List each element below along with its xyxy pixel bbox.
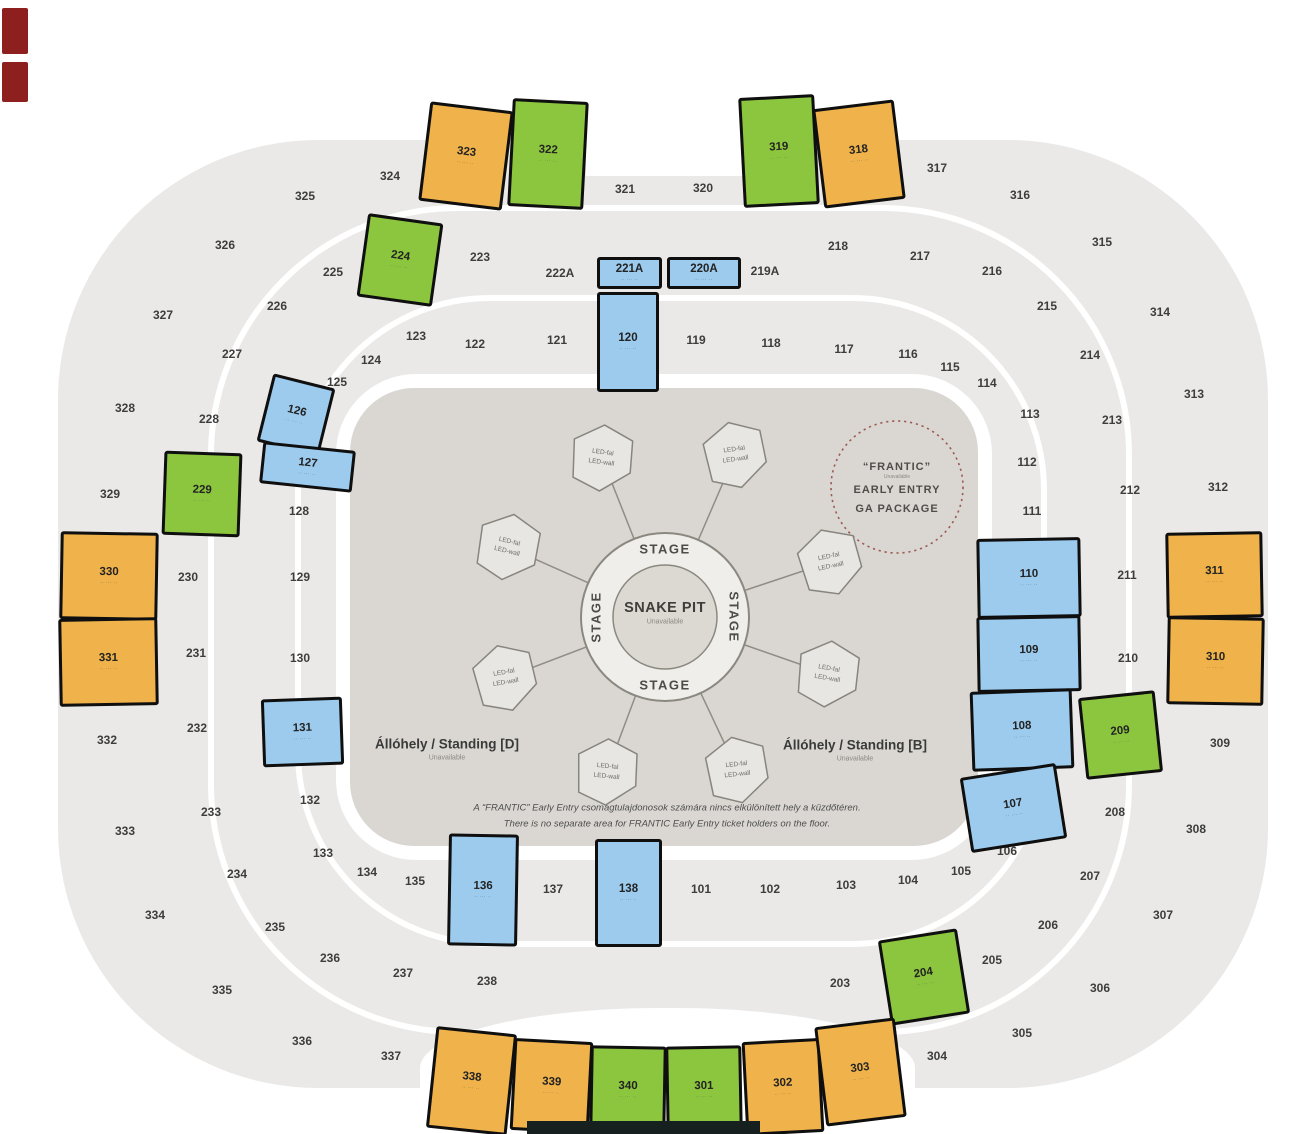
bottom-dark-bar — [527, 1121, 760, 1134]
section-number: 302 — [773, 1078, 793, 1090]
top-entrance-gap — [586, 84, 744, 176]
section-217: 217 — [910, 249, 930, 263]
section-119: 119 — [686, 333, 705, 347]
section-208: 208 — [1105, 805, 1125, 819]
section-subtext: ·· ··· ·· — [852, 1075, 870, 1082]
section-328: 328 — [115, 401, 135, 415]
led-wall-label: LED-falLED-wall — [467, 638, 542, 718]
section-304: 304 — [927, 1049, 947, 1063]
section-130: 130 — [290, 651, 310, 665]
section-113: 113 — [1020, 407, 1039, 421]
section-215: 215 — [1037, 299, 1057, 313]
section-number: 319 — [769, 142, 789, 154]
section-331[interactable]: 331·· ··· ·· — [58, 617, 159, 707]
section-310[interactable]: 310·· ··· ·· — [1166, 616, 1265, 706]
section-number: 127 — [298, 457, 318, 470]
frantic-line3: GA PACKAGE — [855, 503, 938, 515]
section-101: 101 — [691, 882, 711, 896]
section-227: 227 — [222, 347, 242, 361]
section-307: 307 — [1153, 908, 1173, 922]
section-117: 117 — [834, 342, 853, 356]
section-number: 107 — [1003, 798, 1024, 812]
snake-pit-status: Unavailable — [647, 619, 684, 626]
led-wall-pod: LED-falLED-wall — [702, 732, 773, 808]
section-number: 310 — [1206, 652, 1225, 664]
section-214: 214 — [1080, 348, 1100, 362]
section-number: 110 — [1020, 569, 1039, 581]
section-109[interactable]: 109·· ··· ·· — [976, 615, 1081, 693]
section-subtext: ·· ··· ·· — [1020, 582, 1038, 587]
section-228: 228 — [199, 412, 219, 426]
section-306: 306 — [1090, 981, 1110, 995]
section-subtext: ·· ··· ·· — [621, 278, 639, 283]
section-326: 326 — [215, 238, 235, 252]
section-237: 237 — [393, 966, 413, 980]
red-accent-block — [2, 8, 28, 54]
section-124: 124 — [361, 353, 381, 367]
section-115: 115 — [940, 360, 959, 374]
section-122: 122 — [465, 337, 485, 351]
snake-pit-title: SNAKE PIT — [624, 600, 706, 616]
section-number: 138 — [619, 884, 638, 896]
section-337: 337 — [381, 1049, 401, 1063]
section-332: 332 — [97, 733, 117, 747]
section-330[interactable]: 330·· ··· ·· — [59, 531, 159, 621]
standing-b-status: Unavailable — [837, 756, 874, 763]
section-316: 316 — [1010, 188, 1030, 202]
section-subtext: ·· ··· ·· — [1020, 658, 1038, 663]
section-number: 331 — [99, 653, 118, 665]
section-329: 329 — [100, 487, 120, 501]
floor-note-english: There is no separate area for FRANTIC Ea… — [504, 819, 830, 830]
section-209[interactable]: 209·· ··· ·· — [1078, 690, 1163, 780]
section-131[interactable]: 131·· ··· ·· — [261, 697, 344, 768]
section-335: 335 — [212, 983, 232, 997]
led-wall-label: LED-falLED-wall — [790, 634, 865, 714]
section-subtext: ·· ··· ·· — [100, 666, 118, 671]
section-324: 324 — [380, 169, 400, 183]
section-320: 320 — [693, 181, 713, 195]
section-226: 226 — [267, 299, 287, 313]
led-wall-pod: LED-falLED-wall — [565, 419, 638, 497]
section-203: 203 — [830, 976, 850, 990]
section-subtext: ·· ··· ·· — [695, 1094, 713, 1099]
section-311[interactable]: 311·· ··· ·· — [1165, 531, 1263, 619]
section-230: 230 — [178, 570, 198, 584]
section-subtext: ·· ··· ·· — [1206, 579, 1224, 584]
section-308: 308 — [1186, 822, 1206, 836]
section-108[interactable]: 108·· ··· ·· — [970, 688, 1075, 772]
section-232: 232 — [187, 721, 207, 735]
section-105: 105 — [951, 864, 971, 878]
section-303[interactable]: 303·· ··· ·· — [814, 1017, 907, 1126]
section-number: 204 — [913, 967, 934, 981]
section-327: 327 — [153, 308, 173, 322]
section-subtext: ·· ··· ·· — [456, 159, 474, 166]
section-number: 340 — [618, 1081, 637, 1093]
section-309: 309 — [1210, 736, 1230, 750]
section-212: 212 — [1120, 483, 1140, 497]
floor-area — [350, 388, 978, 846]
section-103: 103 — [836, 878, 856, 892]
section-137: 137 — [543, 882, 563, 896]
section-subtext: ·· ··· ·· — [100, 580, 118, 585]
section-222A: 222A — [546, 266, 575, 280]
section-134: 134 — [357, 865, 377, 879]
section-238: 238 — [477, 974, 497, 988]
section-132: 132 — [300, 793, 320, 807]
section-number: 221A — [616, 264, 644, 276]
led-wall-label: LED-falLED-wall — [565, 419, 638, 497]
section-number: 108 — [1012, 721, 1032, 733]
frantic-status: Unavailable — [884, 474, 910, 480]
section-number: 220A — [690, 264, 718, 276]
arena-seat-map: LED-falLED-wallLED-falLED-wallLED-falLED… — [0, 0, 1300, 1134]
frantic-line2: EARLY ENTRY — [853, 484, 940, 496]
led-wall-pod: LED-falLED-wall — [698, 416, 771, 494]
led-wall-pod: LED-falLED-wall — [572, 734, 643, 810]
section-number: 330 — [99, 567, 118, 579]
section-102: 102 — [760, 882, 780, 896]
section-number: 311 — [1205, 566, 1224, 578]
section-subtext: ·· ··· ·· — [294, 736, 312, 741]
stage-label-top: STAGE — [639, 542, 690, 557]
section-206: 206 — [1038, 918, 1058, 932]
section-321: 321 — [615, 182, 635, 196]
section-number: 131 — [293, 723, 313, 735]
section-223: 223 — [470, 250, 490, 264]
standing-b-label: Állóhely / Standing [B] — [783, 738, 927, 753]
section-subtext: ·· ··· ·· — [916, 980, 934, 987]
section-subtext: ·· ··· ·· — [474, 894, 492, 899]
section-325: 325 — [295, 189, 315, 203]
section-338[interactable]: 338·· ··· ·· — [426, 1026, 517, 1134]
section-135: 135 — [405, 874, 425, 888]
standing-d-status: Unavailable — [429, 755, 466, 762]
section-104: 104 — [898, 873, 918, 887]
section-subtext: ·· ··· ·· — [193, 498, 211, 503]
section-229[interactable]: 229·· ··· ·· — [162, 451, 243, 538]
section-116: 116 — [898, 347, 917, 361]
led-wall-pod: LED-falLED-wall — [790, 634, 865, 714]
standing-d-label: Állóhely / Standing [D] — [375, 737, 519, 752]
section-211: 211 — [1117, 568, 1136, 582]
section-133: 133 — [313, 846, 333, 860]
section-333: 333 — [115, 824, 135, 838]
section-number: 136 — [473, 881, 492, 893]
section-339[interactable]: 339·· ··· ·· — [510, 1038, 594, 1134]
section-204[interactable]: 204·· ··· ·· — [878, 928, 970, 1025]
led-wall-label: LED-falLED-wall — [698, 416, 771, 494]
section-236: 236 — [320, 951, 340, 965]
section-305: 305 — [1012, 1026, 1032, 1040]
section-118: 118 — [761, 336, 780, 350]
section-subtext: ·· ··· ·· — [298, 471, 316, 477]
section-334: 334 — [145, 908, 165, 922]
red-accent-block — [2, 62, 28, 102]
section-123: 123 — [406, 329, 426, 343]
section-315: 315 — [1092, 235, 1112, 249]
section-number: 224 — [390, 250, 411, 264]
section-subtext: ·· ··· ·· — [774, 1091, 792, 1096]
section-234: 234 — [227, 867, 247, 881]
section-312: 312 — [1208, 480, 1228, 494]
section-subtext: ·· ··· ·· — [390, 263, 408, 270]
section-128: 128 — [289, 504, 309, 518]
section-110[interactable]: 110·· ··· ·· — [976, 537, 1081, 619]
section-138[interactable]: 138·· ··· ·· — [595, 839, 662, 947]
section-319[interactable]: 319·· ··· ·· — [738, 94, 820, 208]
section-number: 318 — [848, 144, 868, 158]
section-subtext: ·· ··· ·· — [539, 158, 557, 163]
section-220A[interactable]: 220A·· ··· ·· — [667, 257, 741, 289]
section-subtext: ·· ··· ·· — [695, 278, 713, 283]
section-number: 339 — [542, 1077, 562, 1089]
section-number: 303 — [850, 1062, 870, 1076]
section-336: 336 — [292, 1034, 312, 1048]
section-107[interactable]: 107·· ··· ·· — [960, 763, 1068, 853]
section-205: 205 — [982, 953, 1002, 967]
section-number: 338 — [462, 1071, 482, 1084]
stage-label-bottom: STAGE — [639, 678, 690, 693]
section-114: 114 — [977, 376, 996, 390]
section-322[interactable]: 322·· ··· ·· — [507, 98, 589, 210]
section-317: 317 — [927, 161, 947, 175]
section-216: 216 — [982, 264, 1002, 278]
section-313: 313 — [1184, 387, 1204, 401]
stage-label-left: STAGE — [589, 591, 604, 642]
floor-note-hungarian: A “FRANTIC” Early Entry csomagtulajdonos… — [473, 803, 860, 814]
section-number: 301 — [694, 1081, 713, 1093]
section-233: 233 — [201, 805, 221, 819]
section-213: 213 — [1102, 413, 1122, 427]
section-219A: 219A — [751, 264, 780, 278]
section-121: 121 — [547, 333, 567, 347]
section-subtext: ·· ··· ·· — [619, 347, 637, 352]
stage-label-right: STAGE — [727, 591, 742, 642]
section-224[interactable]: 224·· ··· ·· — [357, 213, 444, 307]
section-225: 225 — [323, 265, 343, 279]
section-number: 120 — [618, 333, 637, 345]
section-subtext: ·· ··· ·· — [770, 155, 788, 160]
section-221A[interactable]: 221A·· ··· ·· — [597, 257, 662, 289]
section-120[interactable]: 120·· ··· ·· — [597, 292, 659, 392]
section-subtext: ·· ··· ·· — [1013, 734, 1031, 739]
section-subtext: ·· ··· ·· — [462, 1085, 480, 1091]
section-207: 207 — [1080, 869, 1100, 883]
section-subtext: ·· ··· ·· — [851, 157, 869, 164]
section-subtext: ·· ··· ·· — [542, 1090, 560, 1095]
section-number: 209 — [1110, 725, 1130, 738]
section-314: 314 — [1150, 305, 1170, 319]
section-231: 231 — [186, 646, 206, 660]
section-129: 129 — [290, 570, 310, 584]
section-subtext: ·· ··· ·· — [1112, 739, 1130, 745]
section-number: 229 — [192, 485, 212, 497]
section-112: 112 — [1017, 455, 1036, 469]
section-subtext: ·· ··· ·· — [620, 898, 638, 903]
section-323[interactable]: 323·· ··· ·· — [418, 101, 514, 210]
section-111: 111 — [1023, 504, 1042, 518]
led-wall-label: LED-falLED-wall — [702, 732, 773, 808]
section-235: 235 — [265, 920, 285, 934]
led-wall-pod: LED-falLED-wall — [467, 638, 542, 718]
section-318[interactable]: 318·· ··· ·· — [812, 99, 906, 208]
section-302[interactable]: 302·· ··· ·· — [742, 1038, 825, 1134]
section-number: 109 — [1019, 645, 1038, 657]
section-218: 218 — [828, 239, 848, 253]
section-number: 322 — [538, 145, 558, 157]
section-210: 210 — [1118, 651, 1138, 665]
section-136[interactable]: 136·· ··· ·· — [447, 833, 519, 946]
section-subtext: ·· ··· ·· — [1006, 811, 1024, 818]
section-subtext: ·· ··· ·· — [1207, 665, 1225, 670]
section-number: 323 — [456, 146, 476, 160]
led-wall-label: LED-falLED-wall — [572, 734, 643, 810]
frantic-line1: “FRANTIC” — [863, 461, 931, 473]
section-subtext: ·· ··· ·· — [619, 1094, 637, 1099]
